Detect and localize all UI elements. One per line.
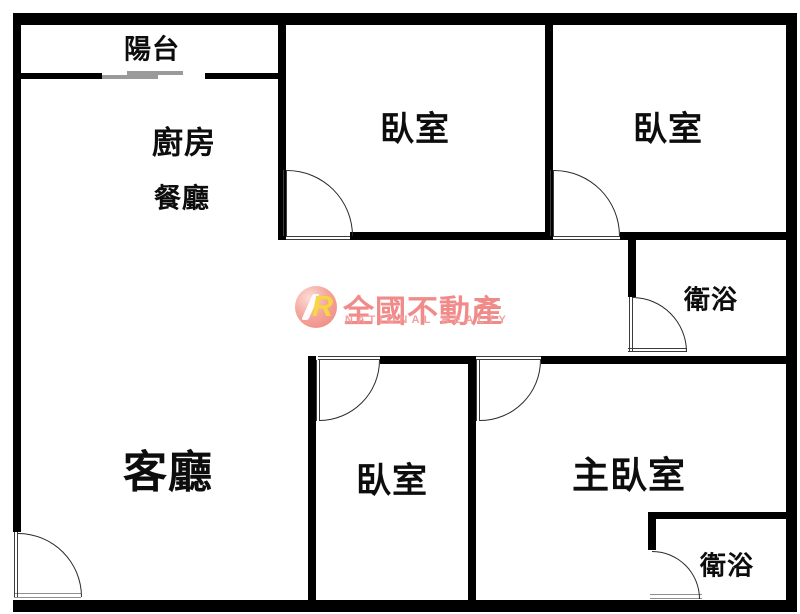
room-label-bathroom-lower: 衛浴 [700, 546, 754, 583]
door-arc-bathroom-lower [652, 551, 700, 599]
room-label-balcony: 陽台 [124, 28, 180, 67]
wall-outer-top [13, 13, 797, 25]
logo-monogram: R [312, 291, 333, 324]
wall-balcony-right [205, 73, 278, 79]
balcony-sliding-door-panel [102, 75, 158, 79]
wall-outer-left [13, 13, 21, 532]
door-arc-master [480, 360, 541, 421]
room-label-bedroom-top-middle: 臥室 [380, 102, 450, 151]
floor-plan: 陽台 廚房 餐廳 臥室 臥室 衛浴 客廳 臥室 主臥室 衛浴 R 全國不動產 N… [0, 0, 800, 614]
room-label-bathroom-upper: 衛浴 [684, 280, 738, 317]
room-label-master-bedroom: 主臥室 [572, 445, 686, 499]
door-arc-bedroom1 [287, 170, 353, 236]
wall-outer-right [786, 13, 797, 612]
wall-bedroom1-bottom [350, 232, 545, 240]
room-label-kitchen: 廚房 [152, 118, 216, 163]
wall-balcony-left [21, 73, 102, 79]
door-arc-entrance [18, 533, 82, 597]
wall-bedroom3-right [468, 356, 476, 612]
wall-master-top [541, 356, 786, 364]
door-arc-bathroom-upper [632, 297, 687, 352]
wall-living-bedroom3 [308, 356, 316, 612]
wall-bedroom3-top [380, 356, 468, 364]
threshold-bedroom2-door [553, 236, 620, 240]
wall-bathroom-upper-left [628, 240, 636, 297]
room-label-living-room: 客廳 [123, 436, 213, 500]
wall-bedroom2-bottom [620, 232, 786, 240]
room-label-bedroom-top-right: 臥室 [633, 102, 703, 151]
wall-bathroom-lower-top [648, 512, 786, 519]
threshold-bedroom1-door [286, 236, 350, 240]
door-arc-bedroom3 [319, 360, 380, 421]
room-label-bedroom-bottom: 臥室 [356, 453, 428, 504]
brand-name-english: NATIONAL REALTY [345, 314, 510, 326]
balcony-sliding-door-panel [127, 71, 183, 75]
wall-outer-bottom [13, 600, 797, 612]
wall-bathroom-lower-left [648, 512, 656, 550]
room-label-dining: 餐廳 [154, 177, 210, 216]
door-arc-bedroom2 [554, 170, 620, 236]
